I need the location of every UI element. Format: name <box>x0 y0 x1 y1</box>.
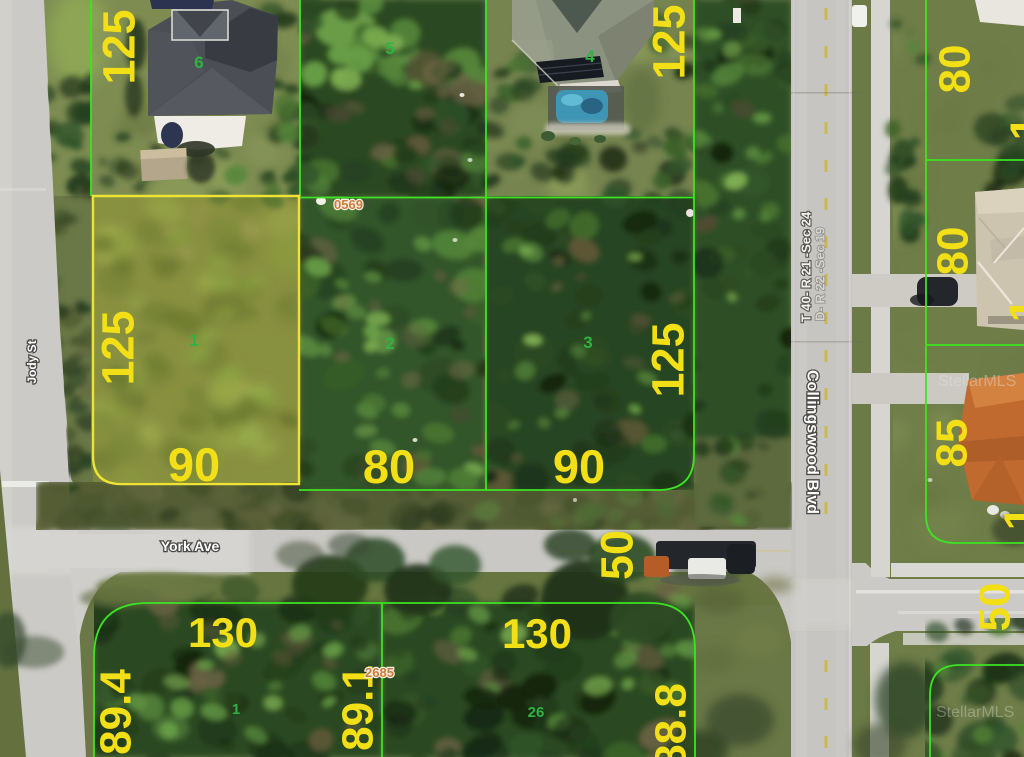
svg-text:1: 1 <box>1001 298 1024 322</box>
svg-text:3: 3 <box>583 333 592 352</box>
svg-text:50: 50 <box>971 583 1020 632</box>
svg-text:90: 90 <box>553 440 605 493</box>
svg-text:York Ave: York Ave <box>161 538 220 554</box>
svg-text:89.4: 89.4 <box>92 669 141 755</box>
svg-text:130: 130 <box>502 610 572 657</box>
svg-text:80: 80 <box>363 440 415 493</box>
svg-text:5: 5 <box>385 39 394 58</box>
svg-text:1: 1 <box>232 701 240 718</box>
svg-text:1: 1 <box>1002 116 1024 140</box>
svg-text:1: 1 <box>996 506 1024 530</box>
svg-text:80: 80 <box>929 227 978 276</box>
svg-text:1: 1 <box>189 331 198 350</box>
svg-text:50: 50 <box>592 530 643 580</box>
svg-text:2685: 2685 <box>365 665 394 680</box>
svg-text:6: 6 <box>194 53 203 72</box>
svg-text:4: 4 <box>585 47 595 66</box>
svg-text:2: 2 <box>385 334 394 353</box>
svg-text:T 40- R 21 -Sec 24: T 40- R 21 -Sec 24 <box>799 211 814 322</box>
svg-text:125: 125 <box>94 9 145 84</box>
svg-text:26: 26 <box>528 704 545 721</box>
svg-text:88.8: 88.8 <box>647 683 696 757</box>
svg-text:StellarMLS: StellarMLS <box>936 704 1014 721</box>
svg-text:125: 125 <box>643 322 694 397</box>
svg-text:Jody St: Jody St <box>25 340 39 383</box>
svg-text:125: 125 <box>644 4 695 79</box>
svg-text:125: 125 <box>93 310 144 385</box>
svg-text:80: 80 <box>931 45 980 94</box>
svg-text:130: 130 <box>188 609 258 656</box>
svg-text:Collingswood Blvd: Collingswood Blvd <box>804 370 821 514</box>
svg-text:StellarMLS: StellarMLS <box>938 373 1016 390</box>
svg-text:85: 85 <box>928 419 977 468</box>
svg-text:D- R 22 -Sec 19: D- R 22 -Sec 19 <box>813 227 828 321</box>
svg-text:0569: 0569 <box>334 197 363 212</box>
svg-text:90: 90 <box>168 438 220 491</box>
